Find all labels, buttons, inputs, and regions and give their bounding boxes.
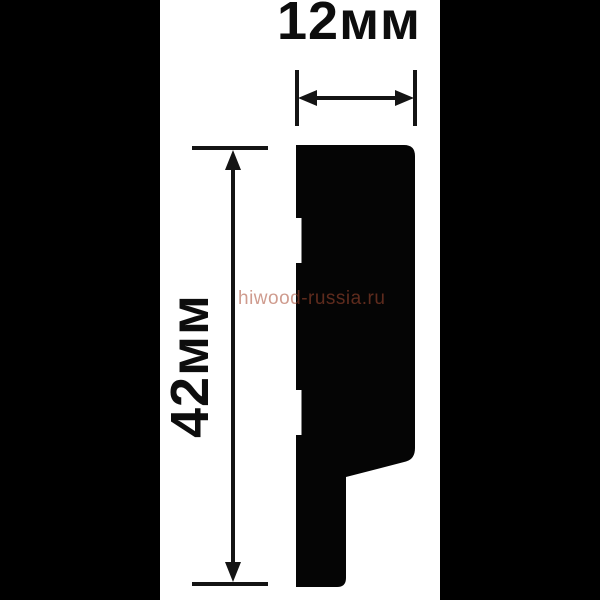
height-arrowhead-bottom xyxy=(225,562,241,582)
height-arrowhead-top xyxy=(225,150,241,170)
width-arrowhead-right xyxy=(395,90,414,106)
watermark-text: hiwood-russia.ru xyxy=(238,289,385,310)
width-arrowhead-left xyxy=(298,90,317,106)
profile-cross-section-shape xyxy=(296,145,415,587)
diagram-canvas: 12мм 42мм hiwood-russia.ru xyxy=(0,0,600,600)
